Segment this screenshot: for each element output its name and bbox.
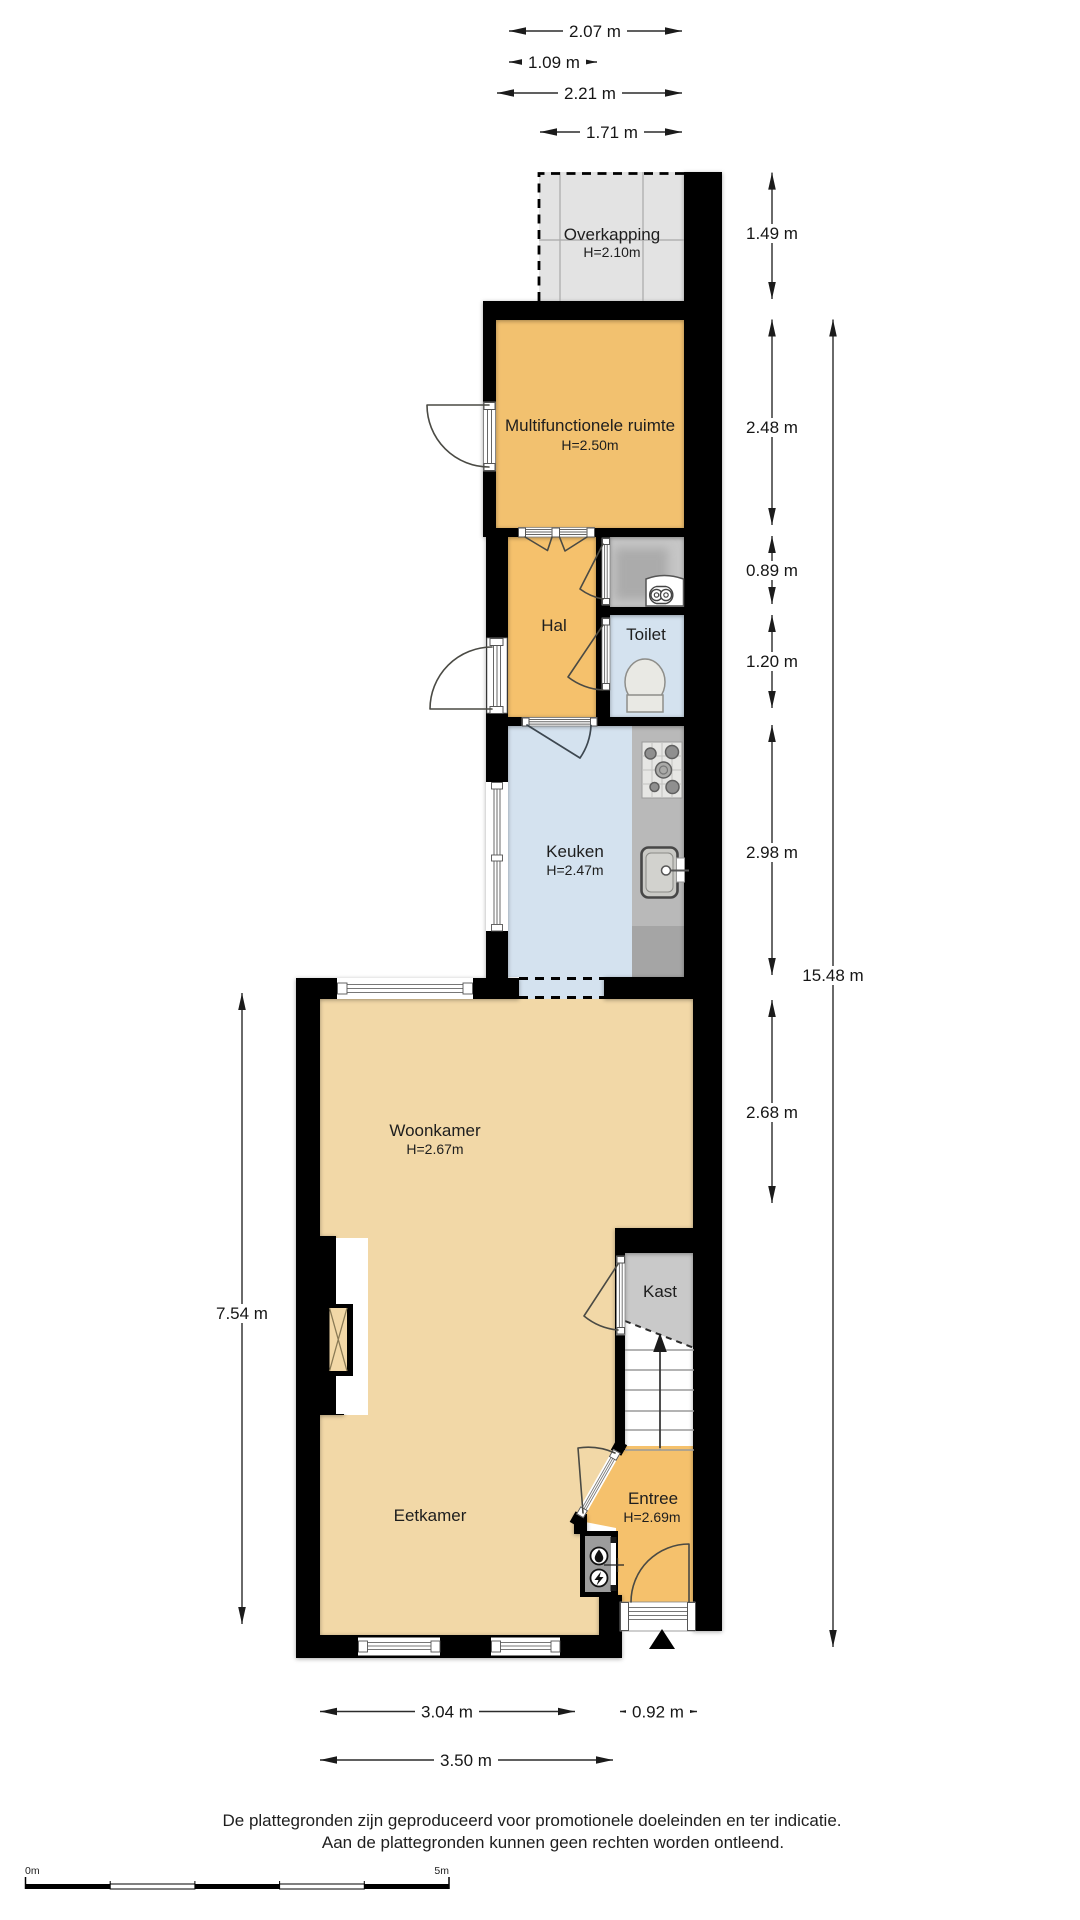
svg-text:2.68 m: 2.68 m: [746, 1103, 798, 1122]
svg-text:2.98 m: 2.98 m: [746, 843, 798, 862]
svg-text:Aan de plattegronden kunnen ge: Aan de plattegronden kunnen geen rechten…: [322, 1833, 784, 1852]
svg-text:Eetkamer: Eetkamer: [394, 1506, 467, 1525]
svg-text:0.89 m: 0.89 m: [746, 561, 798, 580]
svg-text:Woonkamer: Woonkamer: [389, 1121, 481, 1140]
svg-text:H=2.50m: H=2.50m: [561, 437, 618, 453]
svg-text:3.04 m: 3.04 m: [421, 1703, 473, 1722]
svg-text:0m: 0m: [25, 1865, 40, 1877]
svg-text:H=2.47m: H=2.47m: [546, 862, 603, 878]
svg-text:15.48 m: 15.48 m: [802, 966, 863, 985]
svg-text:5m: 5m: [434, 1865, 449, 1877]
svg-text:7.54 m: 7.54 m: [216, 1304, 268, 1323]
svg-text:2.21 m: 2.21 m: [564, 84, 616, 103]
svg-text:Hal: Hal: [541, 616, 567, 635]
svg-text:Kast: Kast: [643, 1282, 677, 1301]
svg-text:3.50 m: 3.50 m: [440, 1751, 492, 1770]
svg-text:1.71 m: 1.71 m: [586, 123, 638, 142]
svg-text:H=2.69m: H=2.69m: [623, 1509, 680, 1525]
svg-text:2.48 m: 2.48 m: [746, 418, 798, 437]
svg-text:0.92 m: 0.92 m: [632, 1703, 684, 1722]
svg-text:1.20 m: 1.20 m: [746, 652, 798, 671]
svg-text:1.49 m: 1.49 m: [746, 224, 798, 243]
svg-text:H=2.10m: H=2.10m: [583, 244, 640, 260]
svg-text:Entree: Entree: [628, 1489, 678, 1508]
svg-text:Overkapping: Overkapping: [564, 225, 660, 244]
svg-text:Multifunctionele ruimte: Multifunctionele ruimte: [505, 416, 675, 435]
svg-text:H=2.67m: H=2.67m: [406, 1141, 463, 1157]
svg-text:1.09 m: 1.09 m: [528, 53, 580, 72]
svg-text:Toilet: Toilet: [626, 625, 666, 644]
svg-text:Keuken: Keuken: [546, 842, 604, 861]
svg-text:De plattegronden zijn geproduc: De plattegronden zijn geproduceerd voor …: [222, 1811, 841, 1830]
svg-text:2.07 m: 2.07 m: [569, 22, 621, 41]
